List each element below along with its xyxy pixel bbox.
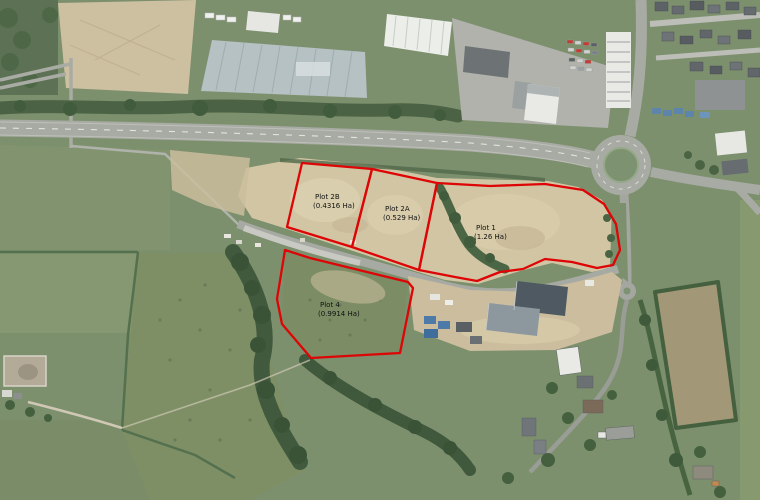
plot-1-area: (1.26 Ha) — [474, 233, 507, 241]
roundabout — [591, 135, 651, 195]
plot-4-area: (0.9914 Ha) — [318, 310, 360, 318]
office-building — [524, 84, 560, 124]
white-depot — [715, 130, 747, 155]
plot-2b-label: Plot 2B — [315, 193, 340, 201]
bare-field-topleft — [58, 0, 196, 94]
striped-building — [606, 32, 631, 108]
plot-2a-area: (0.529 Ha) — [383, 214, 421, 222]
plot-2a-label: Plot 2A — [385, 205, 410, 213]
aerial-photo: Plot 2B (0.4316 Ha) Plot 2A (0.529 Ha) P… — [0, 0, 760, 500]
plot-1-label: Plot 1 — [476, 224, 496, 232]
plot-4-label: Plot 4 — [320, 301, 340, 309]
yard — [695, 80, 745, 110]
aerial-site-plan: Plot 2B (0.4316 Ha) Plot 2A (0.529 Ha) P… — [0, 0, 760, 500]
plot-2b-area: (0.4316 Ha) — [313, 202, 355, 210]
